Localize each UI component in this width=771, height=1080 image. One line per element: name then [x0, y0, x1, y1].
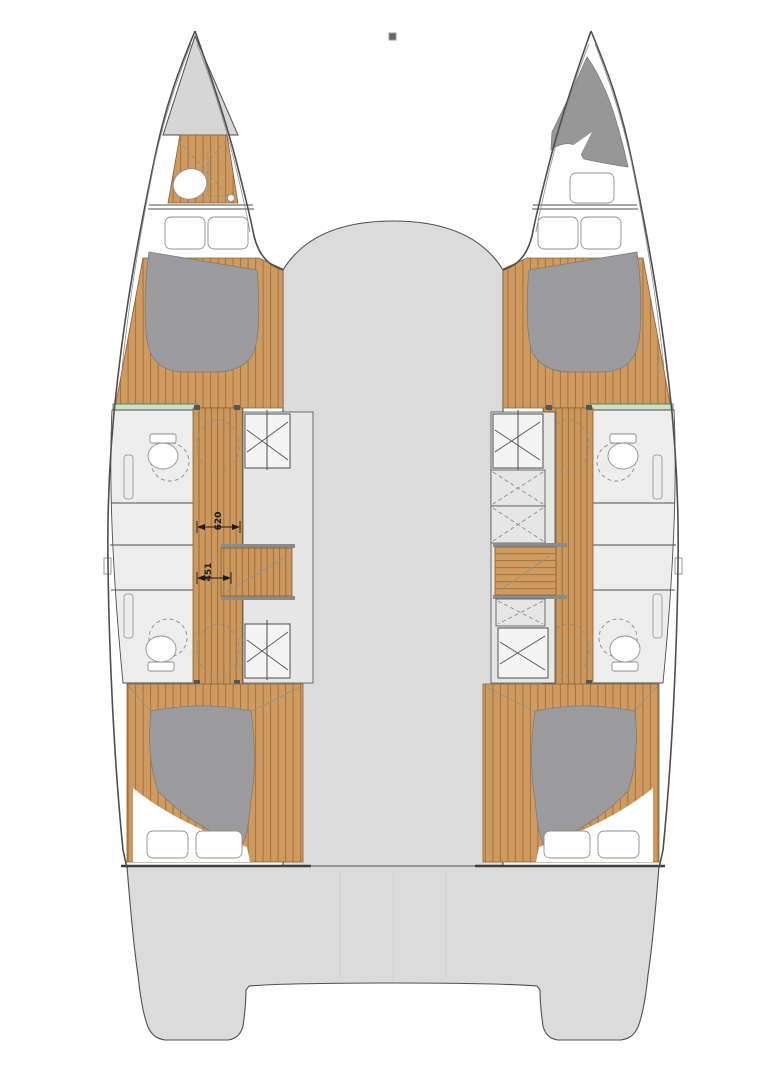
dimension-451-label: 451	[204, 563, 214, 582]
catamaran-floor-plan: 620 451	[0, 0, 771, 1080]
center-marker	[389, 33, 396, 40]
forepeak-left	[163, 36, 238, 204]
bow-hatch	[570, 173, 614, 203]
louver-locker	[498, 628, 548, 678]
stairs	[495, 547, 556, 595]
hanging-locker	[496, 599, 545, 626]
dimension-620-label: 620	[214, 512, 224, 531]
forepeak-berth	[551, 57, 628, 167]
floor-plan-drawing: 620 451	[0, 0, 771, 1080]
bridge-deck	[283, 221, 503, 868]
